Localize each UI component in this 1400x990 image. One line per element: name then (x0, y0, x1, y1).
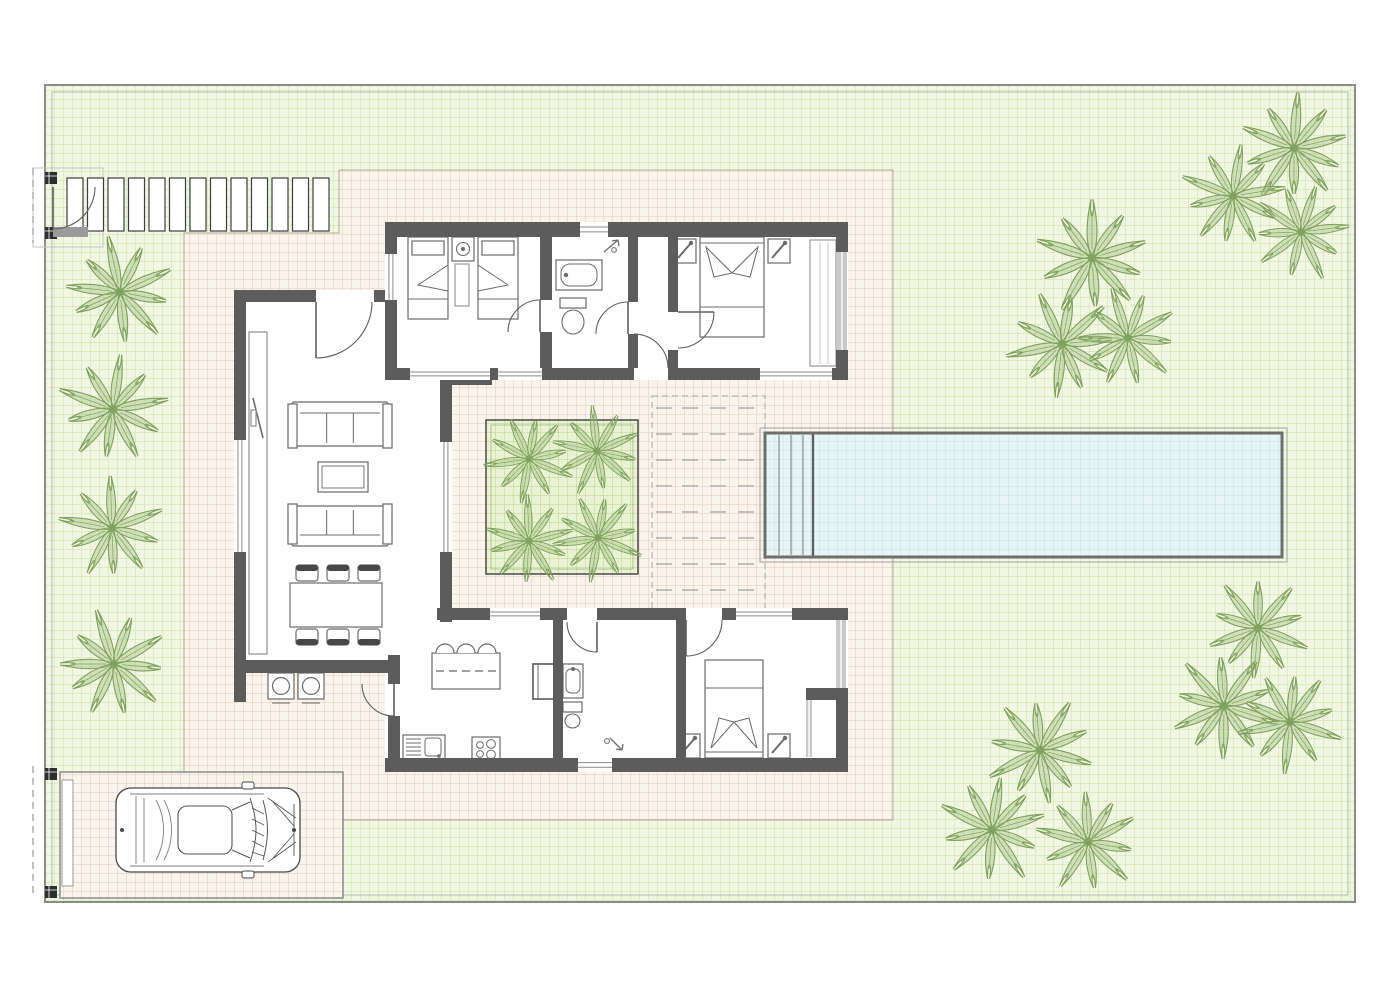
bowl (565, 714, 580, 728)
dining-chair (358, 565, 380, 581)
sofa (288, 402, 392, 448)
double-bed (700, 237, 764, 337)
paver-slat (272, 178, 288, 231)
gate-post (45, 768, 57, 780)
paver-slat (108, 178, 124, 231)
side-mirror (242, 782, 254, 789)
wall (385, 758, 848, 772)
lamp (689, 241, 693, 245)
nightstand (768, 734, 790, 758)
paver-slat (190, 178, 206, 231)
sofa (288, 504, 392, 546)
window (498, 368, 542, 380)
paver-slat (170, 178, 186, 231)
wall (676, 620, 686, 760)
armrest (383, 504, 392, 544)
nightstand (768, 239, 790, 263)
door-opening (316, 290, 374, 302)
double-bed (705, 660, 763, 758)
runner-rug (455, 264, 469, 306)
tap (564, 273, 568, 277)
lamp (783, 736, 787, 740)
door-opening (686, 608, 722, 620)
chair-back (358, 639, 380, 645)
gate-post (45, 172, 57, 184)
furniture (563, 702, 582, 712)
tv-screen (251, 410, 256, 426)
bowl (562, 310, 584, 334)
wall (836, 688, 848, 772)
window (578, 758, 612, 772)
wall (836, 222, 848, 252)
nightstand (452, 237, 474, 261)
tap (571, 667, 575, 671)
wall (385, 222, 848, 237)
villa-floor-plan (0, 0, 1400, 990)
furniture (292, 402, 388, 446)
paver-slat (129, 178, 145, 231)
furniture (249, 332, 267, 654)
window (410, 368, 490, 380)
wall (553, 620, 563, 760)
window (490, 608, 540, 620)
window (760, 368, 832, 380)
furniture (292, 506, 388, 546)
furniture (472, 737, 500, 761)
glass-wall (806, 700, 812, 757)
single-bed (478, 237, 518, 319)
glass-wall (836, 620, 846, 688)
cooktop (472, 737, 500, 761)
swimming-pool (760, 428, 1287, 562)
toilet (560, 298, 586, 334)
dining-table (290, 583, 382, 627)
paver-slat (252, 178, 268, 231)
armrest (288, 404, 297, 448)
gate-post (45, 886, 57, 898)
lamp (693, 736, 697, 740)
armrest (288, 504, 297, 544)
window (580, 222, 608, 237)
chair-back (358, 565, 380, 571)
vehicle-gate-leaf (62, 780, 73, 886)
wall (234, 660, 397, 673)
tv-sideboard (249, 332, 267, 654)
chair-back (296, 565, 318, 571)
paver-slat (149, 178, 165, 231)
paver-slat (293, 178, 309, 231)
ac-unit (268, 673, 294, 703)
window (736, 608, 792, 620)
parked-car (116, 782, 300, 878)
kitchen-sink (403, 735, 445, 759)
door-opening (540, 300, 552, 332)
window (385, 254, 397, 300)
dining-chair (296, 629, 318, 645)
door-opening (567, 608, 597, 620)
paver-slat (231, 178, 247, 231)
dining-chair (327, 629, 349, 645)
dining-chair (327, 565, 349, 581)
door-opening (628, 302, 638, 334)
dining-chair (358, 629, 380, 645)
glass-wall (837, 252, 847, 350)
door-opening (668, 312, 678, 350)
door-opening (634, 368, 668, 380)
bathroom-vanity (563, 664, 583, 698)
tap (437, 754, 441, 758)
floor-plan-page (0, 0, 1400, 990)
dining-chair (296, 565, 318, 581)
window (440, 442, 452, 552)
coffee-table (318, 462, 368, 492)
armrest (383, 404, 392, 448)
chair-back (296, 639, 318, 645)
ac-unit (298, 673, 324, 703)
lamp (783, 241, 787, 245)
chair-back (327, 565, 349, 571)
pillow (412, 241, 444, 255)
car-top-view (116, 782, 300, 878)
pillow (482, 241, 514, 255)
wall (806, 688, 848, 700)
paver-slat (211, 178, 227, 231)
paver-slat (313, 178, 329, 231)
furniture (560, 298, 586, 308)
kitchen-island (432, 653, 500, 689)
pool-water (765, 433, 1282, 557)
window (234, 440, 246, 552)
single-bed (408, 237, 448, 319)
wall (385, 222, 397, 380)
chair-back (327, 639, 349, 645)
wardrobe (810, 240, 836, 366)
paver-slat (88, 178, 104, 231)
side-mirror (242, 871, 254, 878)
bathtub (556, 260, 602, 290)
